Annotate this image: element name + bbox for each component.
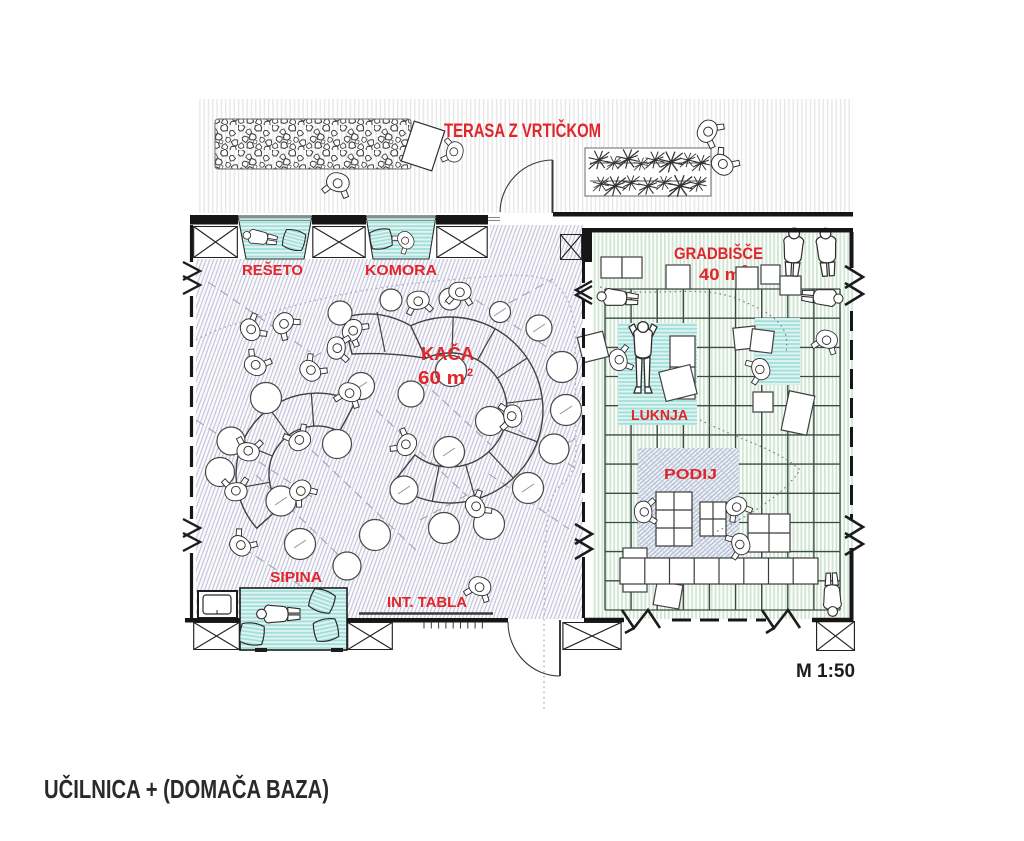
svg-text:2: 2 — [467, 367, 473, 379]
svg-text:SIPINA: SIPINA — [270, 569, 322, 586]
svg-text:INT. TABLA: INT. TABLA — [387, 594, 467, 611]
svg-text:PODIJ: PODIJ — [664, 466, 717, 483]
svg-text:40 m: 40 m — [699, 265, 741, 284]
svg-text:KAČA: KAČA — [421, 343, 474, 364]
svg-text:UČILNICA + (DOMAČA BAZA): UČILNICA + (DOMAČA BAZA) — [44, 774, 329, 804]
svg-text:REŠETO: REŠETO — [242, 261, 303, 279]
svg-text:GRADBIŠČE: GRADBIŠČE — [674, 244, 763, 263]
svg-text:KOMORA: KOMORA — [365, 262, 437, 279]
svg-text:60 m: 60 m — [418, 368, 465, 388]
svg-text:LUKNJA: LUKNJA — [631, 407, 688, 424]
svg-text:M 1:50: M 1:50 — [796, 661, 855, 682]
svg-text:TERASA Z VRTIČKOM: TERASA Z VRTIČKOM — [444, 120, 601, 142]
